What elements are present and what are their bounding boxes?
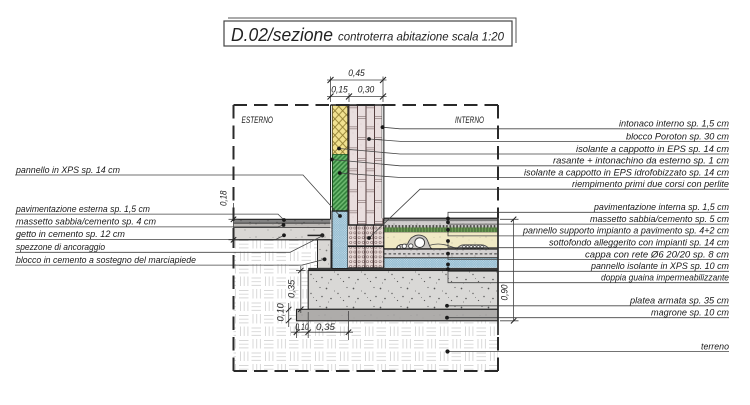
svg-text:intonaco interno sp. 1,5 cm: intonaco interno sp. 1,5 cm <box>619 119 729 129</box>
svg-text:pavimentazione esterna sp. 1,5: pavimentazione esterna sp. 1,5 cm <box>15 204 150 214</box>
svg-text:platea armata sp. 35 cm: platea armata sp. 35 cm <box>629 296 729 306</box>
svg-text:blocco in cemento a sostegno d: blocco in cemento a sostegno del marciap… <box>16 255 196 265</box>
svg-text:D.02/sezione: D.02/sezione <box>231 24 333 45</box>
svg-text:riempimento primi due corsi co: riempimento primi due corsi con perlite <box>572 179 729 189</box>
svg-text:doppia guaina impermeabilizzan: doppia guaina impermeabilizzante <box>601 273 729 283</box>
svg-text:0,30: 0,30 <box>358 85 375 95</box>
svg-text:controterra abitazione scala: controterra abitazione scala 1:20 <box>338 30 504 44</box>
svg-text:massetto sabbia/cemento sp. 5: massetto sabbia/cemento sp. 5 cm <box>590 214 729 224</box>
svg-text:getto in cemento sp. 12 cm: getto in cemento sp. 12 cm <box>16 229 125 239</box>
svg-text:pannello supporto impianto a p: pannello supporto impianto a pavimento s… <box>522 226 729 236</box>
svg-text:ESTERNO: ESTERNO <box>242 115 274 125</box>
svg-text:0,18: 0,18 <box>219 190 229 206</box>
svg-text:isolante a cappotto in EPS sp.: isolante a cappotto in EPS sp. 14 cm <box>576 144 729 154</box>
svg-text:rasante + intonachino da ester: rasante + intonachino da esterno sp. 1 c… <box>553 156 729 166</box>
svg-text:0,15: 0,15 <box>331 85 348 95</box>
svg-text:pannello isolante in XPS sp. 1: pannello isolante in XPS sp. 10 cm <box>590 261 729 271</box>
svg-text:pavimentazione interna sp. 1,5: pavimentazione interna sp. 1,5 cm <box>593 202 729 212</box>
svg-text:sottofondo alleggerito con imp: sottofondo alleggerito con impianti sp. … <box>549 238 729 248</box>
svg-text:isolante a cappotto in EPS idr: isolante a cappotto in EPS idrofobizzato… <box>524 167 729 177</box>
svg-text:spezzone di ancoraggio: spezzone di ancoraggio <box>16 242 105 252</box>
svg-text:massetto sabbia/cemento sp. 4: massetto sabbia/cemento sp. 4 cm <box>16 217 156 227</box>
svg-text:pannello in XPS sp. 14 cm: pannello in XPS sp. 14 cm <box>15 165 120 175</box>
svg-text:blocco Poroton sp. 30 cm: blocco Poroton sp. 30 cm <box>626 131 729 141</box>
svg-text:0,45: 0,45 <box>348 68 365 78</box>
svg-text:0,35: 0,35 <box>316 322 336 332</box>
svg-text:magrone sp. 10 cm: magrone sp. 10 cm <box>651 308 729 318</box>
svg-text:cappa con rete Ø6 20/20 sp. 8: cappa con rete Ø6 20/20 sp. 8 cm <box>585 249 729 259</box>
svg-text:0,10: 0,10 <box>295 322 309 332</box>
svg-text:0,90: 0,90 <box>500 284 510 301</box>
svg-text:0,35: 0,35 <box>286 279 297 298</box>
svg-text:terreno: terreno <box>701 341 729 351</box>
svg-text:0,10: 0,10 <box>275 302 286 321</box>
svg-text:INTERNO: INTERNO <box>455 115 484 125</box>
